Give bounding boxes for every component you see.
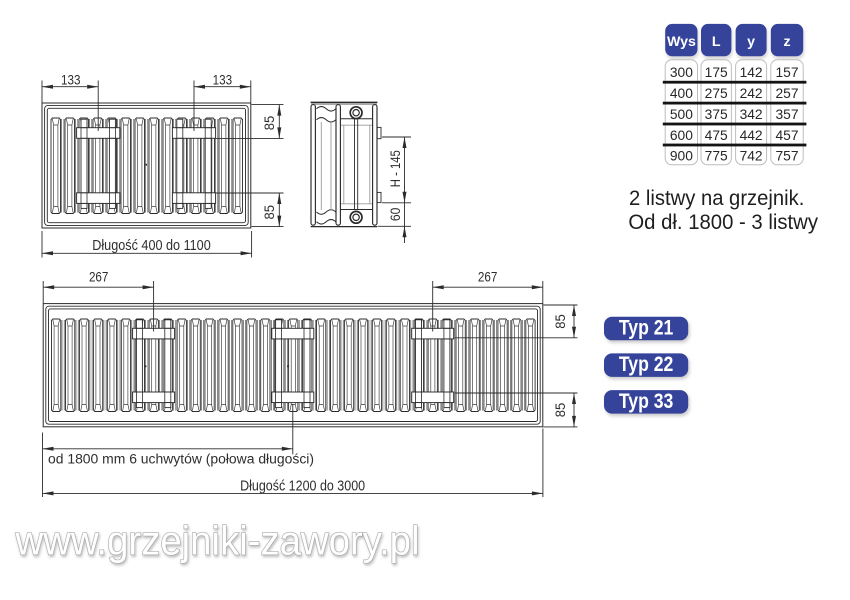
svg-text:157: 157 [775, 65, 798, 80]
svg-text:133: 133 [213, 72, 233, 87]
svg-text:267: 267 [89, 269, 109, 284]
svg-text:442: 442 [740, 128, 763, 143]
svg-text:www.grzejniki-zawory.pl: www.grzejniki-zawory.pl [15, 518, 420, 564]
svg-text:Typ 33: Typ 33 [619, 390, 674, 413]
svg-text:Długość 400 do 1100: Długość 400 do 1100 [92, 238, 211, 254]
svg-text:Od dł. 1800 - 3 listwy: Od dł. 1800 - 3 listwy [628, 211, 818, 234]
svg-text:342: 342 [740, 107, 763, 122]
svg-text:Typ 22: Typ 22 [619, 353, 674, 376]
svg-text:85: 85 [553, 402, 568, 417]
svg-text:457: 457 [775, 128, 798, 143]
svg-text:600: 600 [670, 128, 693, 143]
svg-text:242: 242 [740, 86, 763, 101]
svg-text:475: 475 [705, 128, 728, 143]
svg-text:275: 275 [705, 86, 728, 101]
svg-text:175: 175 [705, 65, 728, 80]
svg-text:85: 85 [262, 115, 277, 130]
svg-text:od 1800 mm 6 uchwytów (połowa: od 1800 mm 6 uchwytów (połowa długości) [48, 451, 314, 467]
svg-text:z: z [783, 34, 790, 50]
svg-text:742: 742 [740, 149, 763, 164]
svg-text:2 listwy na grzejnik.: 2 listwy na grzejnik. [629, 187, 804, 210]
svg-text:775: 775 [705, 149, 728, 164]
svg-text:257: 257 [775, 86, 798, 101]
svg-text:Wys: Wys [667, 34, 696, 50]
svg-text:L: L [712, 34, 721, 50]
svg-text:133: 133 [61, 72, 81, 87]
svg-text:267: 267 [478, 269, 498, 284]
svg-text:H - 145: H - 145 [388, 150, 403, 187]
svg-text:85: 85 [553, 314, 568, 329]
svg-text:Długość 1200 do 3000: Długość 1200 do 3000 [240, 478, 365, 494]
svg-text:375: 375 [705, 107, 728, 122]
svg-text:900: 900 [670, 149, 693, 164]
svg-text:85: 85 [262, 205, 277, 220]
svg-text:142: 142 [740, 65, 763, 80]
svg-text:357: 357 [775, 107, 798, 122]
svg-text:757: 757 [775, 149, 798, 164]
svg-text:300: 300 [670, 65, 693, 80]
svg-text:500: 500 [670, 107, 693, 122]
svg-text:Typ 21: Typ 21 [619, 317, 674, 340]
svg-text:60: 60 [388, 207, 403, 221]
svg-text:400: 400 [670, 86, 693, 101]
svg-text:y: y [747, 34, 755, 50]
